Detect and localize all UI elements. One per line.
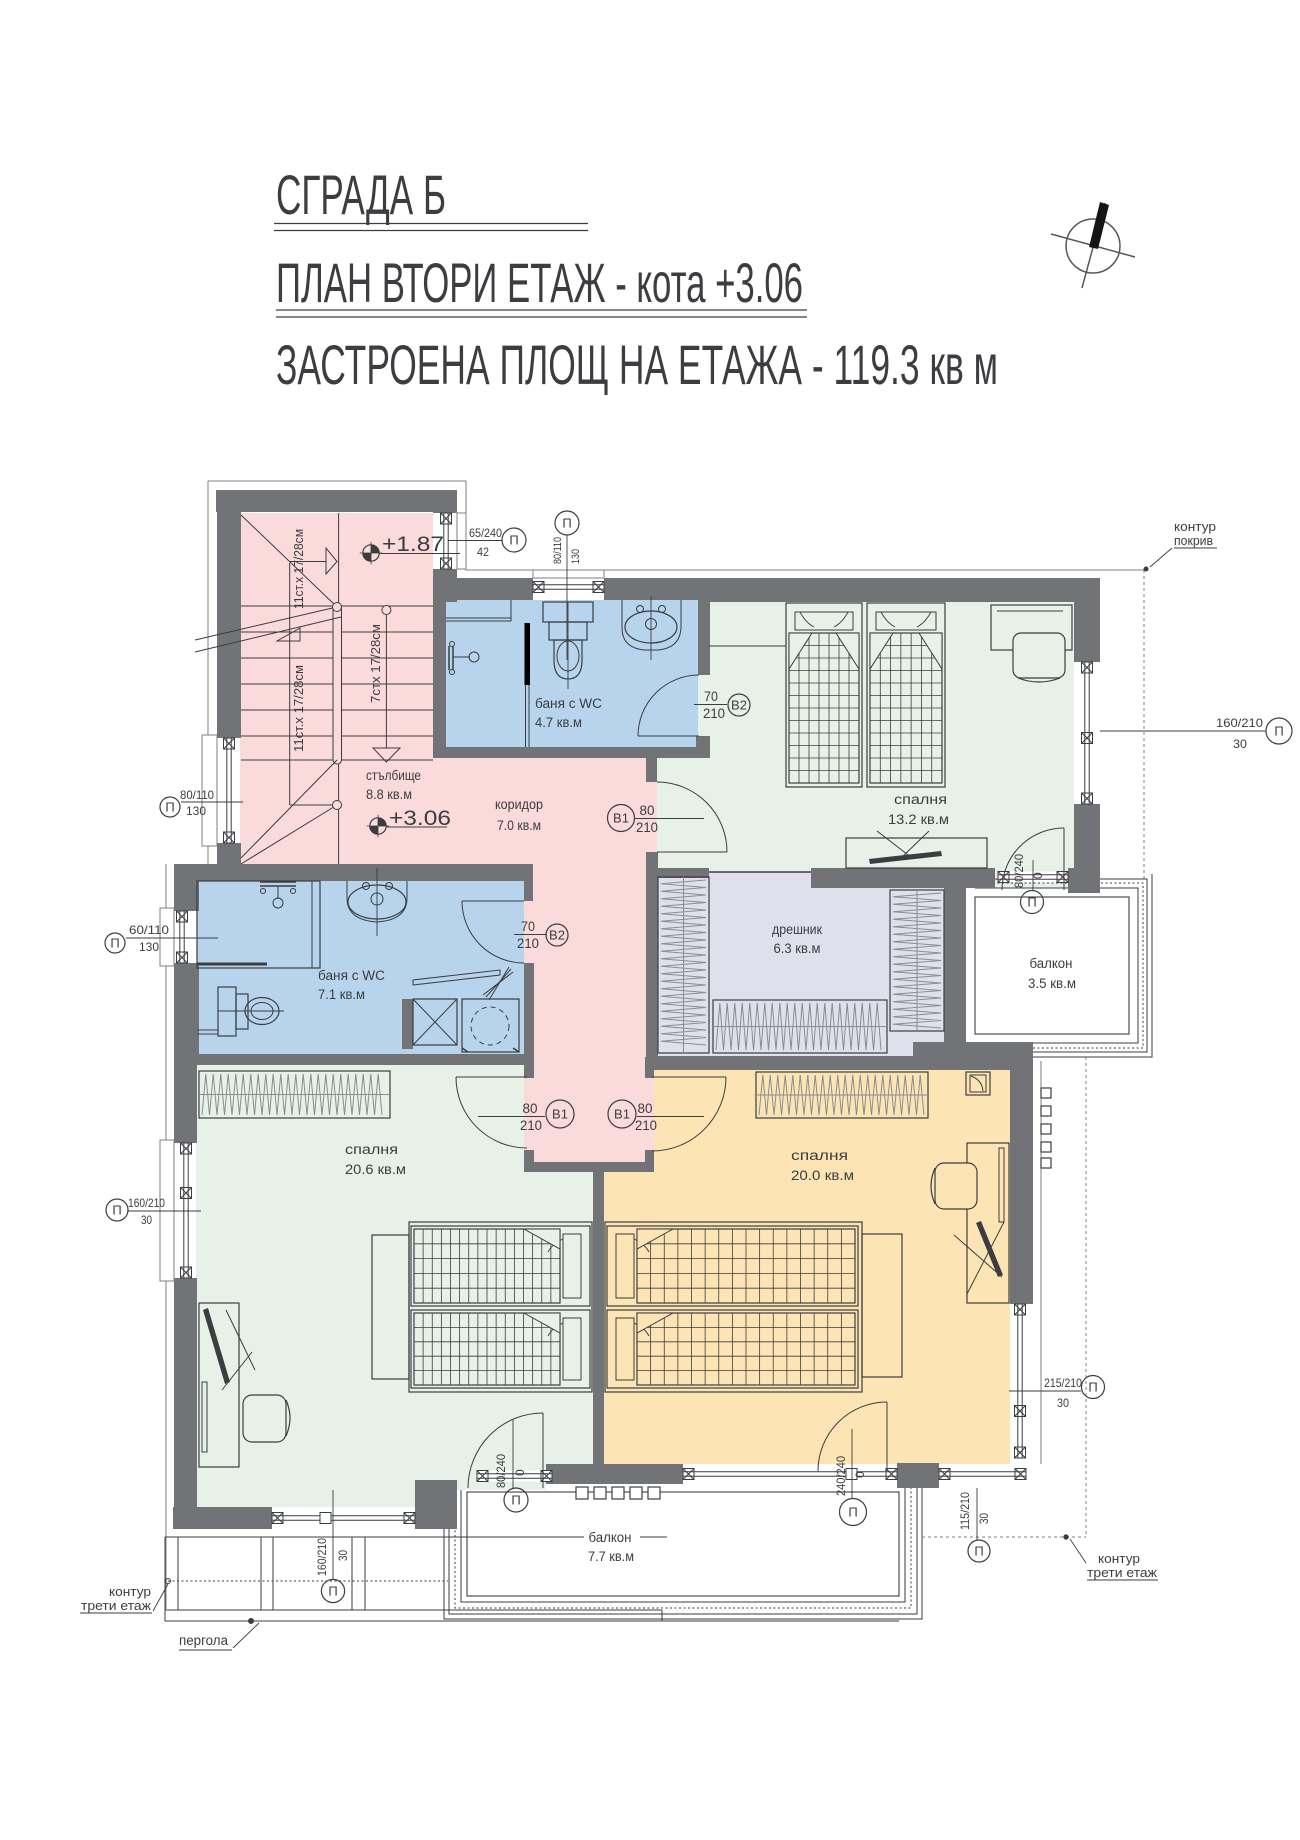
svg-text:П: П [562, 516, 571, 531]
svg-text:B2: B2 [549, 928, 565, 943]
svg-text:42: 42 [477, 545, 489, 559]
svg-text:80: 80 [523, 1101, 538, 1116]
svg-text:балкон: балкон [1030, 956, 1073, 971]
svg-text:П: П [848, 1505, 857, 1520]
svg-text:80/110: 80/110 [180, 788, 214, 802]
svg-text:спалня: спалня [345, 1142, 398, 1157]
svg-text:210: 210 [520, 1118, 542, 1133]
svg-text:30: 30 [336, 1550, 350, 1561]
svg-text:80: 80 [638, 1101, 653, 1116]
svg-text:7.1 кв.м: 7.1 кв.м [318, 987, 365, 1002]
svg-text:130: 130 [186, 804, 206, 818]
svg-text:B1: B1 [613, 811, 629, 826]
svg-text:стълбище: стълбище [366, 768, 421, 783]
svg-text:контур: контур [1098, 1552, 1140, 1566]
svg-text:7.0 кв.м: 7.0 кв.м [497, 818, 541, 833]
svg-text:70: 70 [521, 919, 535, 934]
svg-text:трети етаж: трети етаж [1087, 1566, 1158, 1580]
svg-text:130: 130 [139, 940, 159, 954]
svg-text:7стх 17/28см: 7стх 17/28см [369, 624, 383, 703]
svg-text:спалня: спалня [894, 792, 947, 807]
svg-text:60/110: 60/110 [129, 923, 169, 937]
svg-text:П: П [511, 1493, 520, 1508]
svg-text:130: 130 [570, 549, 582, 564]
svg-text:7.7 кв.м: 7.7 кв.м [588, 1549, 634, 1564]
svg-text:210: 210 [703, 706, 725, 721]
svg-text:ПЛАН ВТОРИ ЕТАЖ - кота +3.06: ПЛАН ВТОРИ ЕТАЖ - кота +3.06 [276, 251, 803, 314]
svg-text:балкон: балкон [589, 1530, 632, 1545]
svg-text:30: 30 [1057, 1396, 1069, 1410]
svg-text:65/240: 65/240 [469, 526, 502, 540]
svg-text:4.7 кв.м: 4.7 кв.м [535, 715, 582, 730]
svg-text:B1: B1 [614, 1107, 630, 1122]
svg-text:СГРАДА Б: СГРАДА Б [276, 163, 446, 226]
svg-text:80: 80 [640, 803, 655, 818]
svg-text:0: 0 [1031, 872, 1045, 879]
svg-text:B1: B1 [552, 1107, 568, 1122]
svg-text:спалня: спалня [791, 1148, 848, 1163]
svg-text:30: 30 [977, 1513, 991, 1524]
svg-text:30: 30 [1233, 737, 1247, 751]
svg-text:210: 210 [636, 820, 658, 835]
svg-text:11ст.х 17/28см: 11ст.х 17/28см [292, 529, 306, 609]
svg-text:П: П [1088, 1380, 1097, 1395]
svg-text:13.2 кв.м: 13.2 кв.м [888, 812, 949, 827]
svg-text:коридор: коридор [495, 797, 543, 812]
svg-text:8.8 кв.м: 8.8 кв.м [366, 787, 412, 802]
svg-text:11ст.х 17/28см: 11ст.х 17/28см [292, 665, 306, 752]
svg-text:0: 0 [853, 1471, 867, 1478]
svg-text:П: П [328, 1584, 337, 1599]
svg-text:80/240: 80/240 [494, 1454, 508, 1488]
svg-text:покрив: покрив [1174, 534, 1213, 548]
svg-text:80/110: 80/110 [552, 537, 564, 564]
svg-text:трети етаж: трети етаж [81, 1599, 152, 1613]
svg-text:П: П [110, 936, 119, 951]
svg-text:П: П [112, 1203, 121, 1218]
svg-text:0: 0 [513, 1469, 527, 1476]
svg-text:70: 70 [704, 689, 718, 704]
svg-text:баня с WC: баня с WC [535, 696, 602, 711]
svg-text:3.5 кв.м: 3.5 кв.м [1028, 976, 1076, 991]
svg-text:П: П [165, 800, 174, 815]
svg-text:20.0 кв.м: 20.0 кв.м [791, 1168, 854, 1183]
svg-text:B2: B2 [731, 698, 747, 713]
svg-text:пергола: пергола [179, 1633, 228, 1648]
svg-text:80/240: 80/240 [1012, 854, 1026, 888]
svg-text:160/210: 160/210 [1216, 716, 1263, 730]
svg-text:160/210: 160/210 [128, 1196, 165, 1210]
svg-text:210: 210 [517, 936, 539, 951]
svg-text:контур: контур [109, 1585, 151, 1599]
svg-text:6.3 кв.м: 6.3 кв.м [774, 941, 821, 956]
svg-text:215/210: 215/210 [1044, 1376, 1082, 1390]
svg-text:П: П [1027, 895, 1036, 910]
svg-text:30: 30 [141, 1213, 152, 1227]
svg-text:П: П [974, 1544, 983, 1559]
svg-text:240/240: 240/240 [834, 1456, 848, 1496]
svg-text:П: П [509, 533, 518, 548]
svg-text:115/210: 115/210 [958, 1492, 972, 1530]
svg-text:+1.87: +1.87 [382, 533, 444, 556]
svg-text:160/210: 160/210 [315, 1538, 329, 1576]
svg-text:210: 210 [635, 1118, 657, 1133]
svg-text:20.6 кв.м: 20.6 кв.м [345, 1162, 406, 1177]
svg-text:ЗАСТРОЕНА ПЛОЩ НА ЕТАЖА - 119.: ЗАСТРОЕНА ПЛОЩ НА ЕТАЖА - 119.3 кв м [276, 333, 998, 396]
svg-text:контур: контур [1174, 520, 1216, 534]
svg-text:дрешник: дрешник [772, 922, 822, 937]
svg-text:баня с WC: баня с WC [318, 968, 385, 983]
svg-text:П: П [1274, 724, 1283, 739]
